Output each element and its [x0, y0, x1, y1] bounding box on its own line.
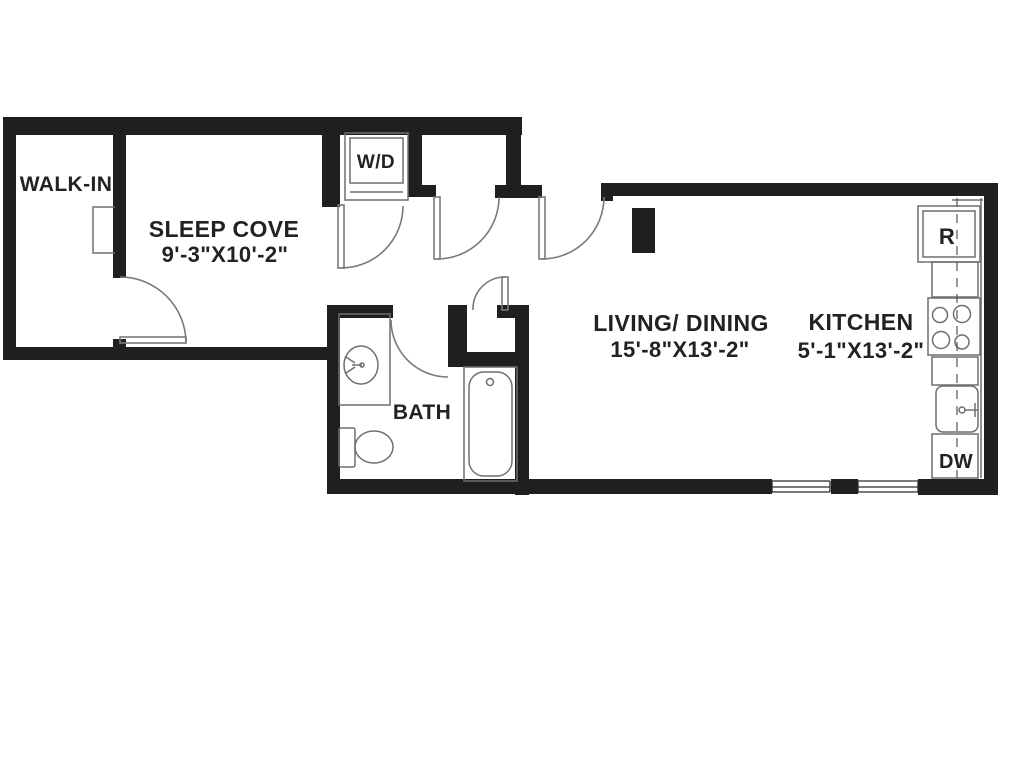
wd-door-leaf: [338, 205, 344, 268]
living-dining-dimensions: 15'-8"X13'-2": [610, 337, 749, 362]
kitchen-counter-2: [932, 357, 978, 385]
wd-door-arc: [341, 206, 403, 268]
toilet-bowl: [355, 431, 393, 463]
wall-bottom: [327, 479, 772, 494]
kitchen-counter-1: [932, 262, 978, 297]
floor-plan-stage: WALK-IN SLEEP COVE 9'-3"X10'-2" W/D BATH…: [0, 0, 1024, 768]
walkin-door-arc: [120, 277, 186, 343]
dishwasher-label: DW: [939, 451, 973, 473]
bath-door-arc: [391, 320, 448, 377]
labels-layer: WALK-IN SLEEP COVE 9'-3"X10'-2" W/D BATH…: [20, 152, 973, 473]
sleep-cove-dimensions: 9'-3"X10'-2": [162, 242, 289, 267]
living-dining-label: LIVING/ DINING: [593, 310, 769, 336]
kitchen-label: KITCHEN: [808, 309, 913, 335]
wall-wd-closet-right: [408, 135, 422, 187]
toilet-tank: [339, 428, 355, 467]
wall-walkin-divider: [113, 132, 126, 278]
stove-burner-1: [933, 308, 948, 323]
refrigerator-label: R: [939, 224, 955, 249]
walk-in-label: WALK-IN: [20, 173, 113, 196]
floor-plan-drawing: WALK-IN SLEEP COVE 9'-3"X10'-2" W/D BATH…: [0, 0, 1024, 768]
entry-closet-door-arc: [437, 197, 499, 259]
wall-left: [3, 117, 16, 360]
stove-burner-2: [954, 306, 971, 323]
bath-vanity: [339, 314, 390, 405]
wall-right: [984, 183, 998, 495]
bathtub: [464, 367, 517, 481]
wall-sleep-cove-right: [322, 135, 340, 207]
bathtub-outline: [464, 367, 517, 481]
walls-layer: [3, 117, 998, 495]
kitchen-sink-faucet: [965, 403, 978, 417]
wall-entry-segment: [495, 185, 542, 198]
wall-living-top-stub: [601, 183, 613, 201]
bathtub-basin: [469, 372, 512, 476]
walkin-door-leaf: [120, 337, 186, 343]
wall-living-top: [601, 183, 998, 196]
walkin-shelf: [93, 207, 115, 253]
wall-sleep-cove-bottom: [3, 347, 330, 360]
stove-burner-3: [933, 332, 950, 349]
bathtub-drain: [487, 379, 494, 386]
wall-bath-top: [327, 305, 393, 318]
washer-dryer-label: W/D: [357, 152, 395, 173]
kitchen-sink-faucet-base: [959, 407, 965, 413]
vanity-counter: [339, 314, 390, 405]
sleep-cove-label: SLEEP COVE: [149, 216, 300, 242]
toilet: [339, 428, 393, 467]
wall-window-mullion: [831, 479, 858, 494]
kitchen-dimensions: 5'-1"X13'-2": [798, 338, 925, 363]
wall-wd-closet-jamb: [408, 185, 436, 197]
entry-door-arc: [542, 197, 604, 259]
wall-entry-closet-right: [506, 135, 521, 187]
entry-closet-door-leaf: [434, 197, 440, 259]
wall-top-left: [3, 117, 522, 135]
wall-living-column: [632, 208, 655, 253]
bath-label: BATH: [393, 401, 451, 424]
wall-bath-left: [327, 305, 340, 492]
wall-bottom-right-corner: [918, 479, 998, 495]
entry-door-leaf: [539, 197, 545, 259]
